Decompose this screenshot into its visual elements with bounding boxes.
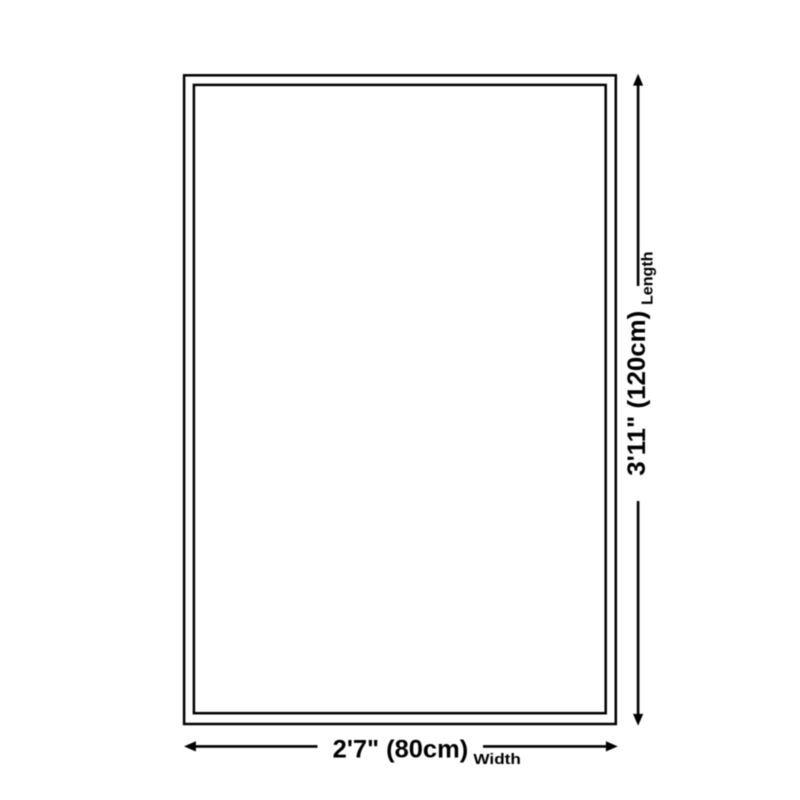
svg-text:2'7" (80cm): 2'7" (80cm) — [333, 735, 469, 763]
svg-text:Length: Length — [640, 252, 657, 306]
svg-text:Width: Width — [473, 752, 521, 768]
svg-text:3'11" (120cm): 3'11" (120cm) — [623, 311, 651, 476]
